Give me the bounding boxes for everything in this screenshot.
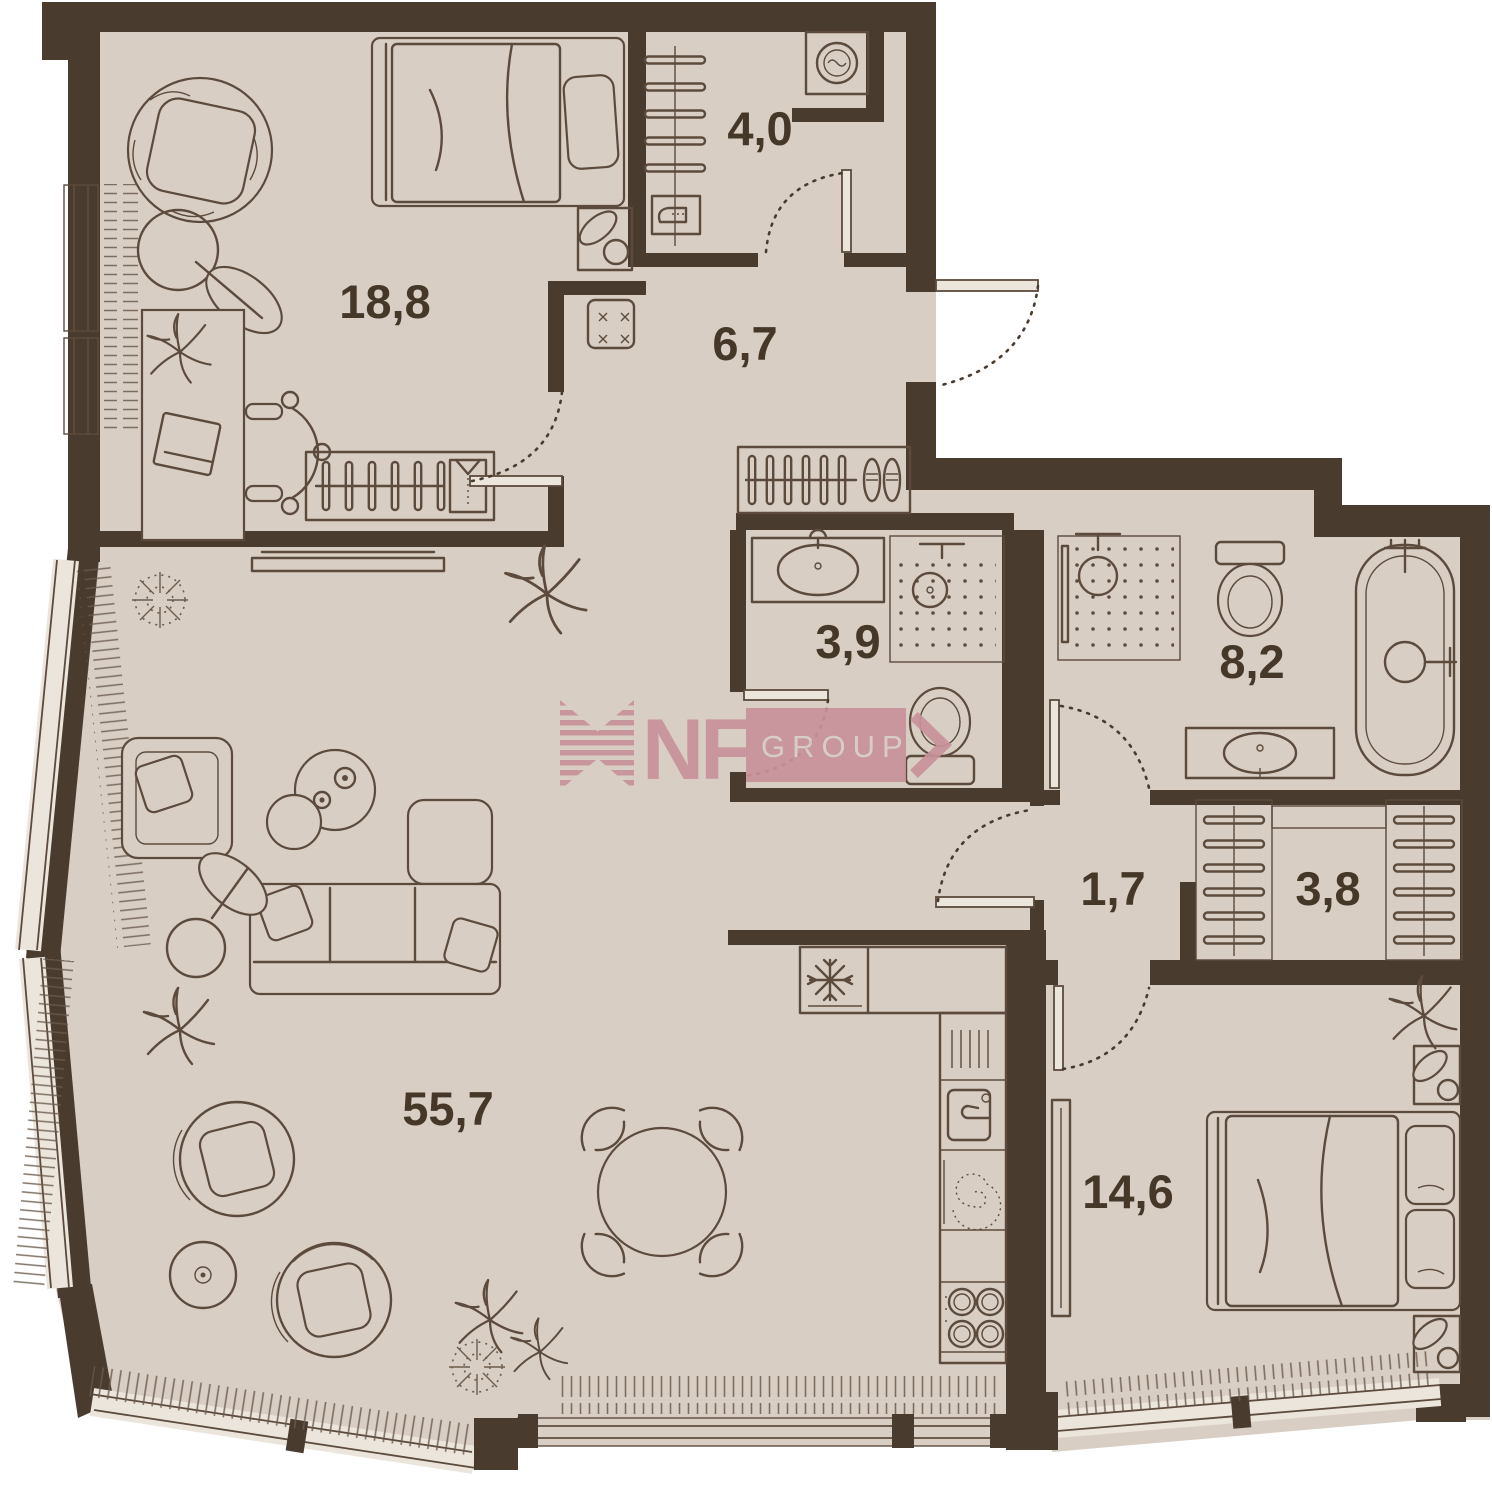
single-bed (372, 38, 624, 206)
room-label-hallway: 6,7 (712, 317, 777, 370)
nf-logo-text: NF (642, 702, 750, 798)
room-label-wardrobe: 3,8 (1295, 862, 1360, 915)
room-label-laundry: 4,0 (727, 102, 792, 155)
rug-armchair (128, 78, 272, 222)
pouf (408, 800, 492, 884)
room-label-living: 55,7 (402, 1082, 493, 1135)
desk (142, 310, 244, 540)
sofa (250, 884, 500, 994)
double-bed (1207, 1112, 1460, 1310)
room-label-bathroom: 8,2 (1219, 635, 1284, 688)
room-label-master-bedroom: 14,6 (1082, 1165, 1173, 1218)
nf-logo-group-text: GROUP (761, 729, 910, 764)
floor-plan-drawing: 18,8 4,0 6,7 3,9 8,2 1,7 3,8 55,7 14,6 N… (0, 0, 1492, 1500)
floor-plan: 18,8 4,0 6,7 3,9 8,2 1,7 3,8 55,7 14,6 N… (0, 0, 1492, 1500)
armchair (122, 738, 232, 858)
room-label-shower-room: 3,9 (815, 615, 880, 668)
room-label-bedroom2: 18,8 (339, 275, 430, 328)
room-label-vestibule: 1,7 (1080, 862, 1145, 915)
entry-door (936, 280, 1038, 386)
shower-area (1058, 534, 1180, 660)
